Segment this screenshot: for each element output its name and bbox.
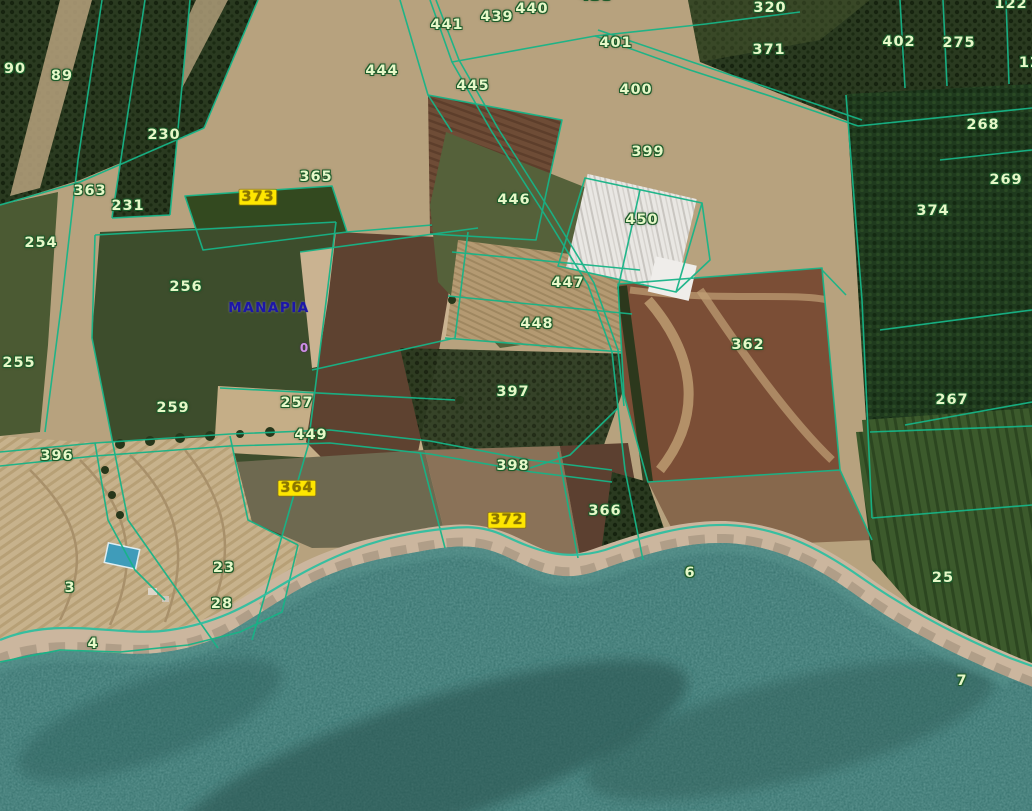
parcel-label-90: 90: [4, 62, 26, 77]
parcel-label-398: 398: [496, 459, 529, 474]
parcel-label-373: 373: [239, 190, 276, 205]
parcel-label-23: 23: [213, 561, 235, 576]
parcel-label-366: 366: [588, 504, 621, 519]
parcel-label-268: 268: [966, 118, 999, 133]
parcel-label-255: 255: [2, 356, 35, 371]
parcel-label-25: 25: [932, 571, 954, 586]
parcel-label-231: 231: [111, 199, 144, 214]
parcel-label-402: 402: [882, 35, 915, 50]
parcel-label-89: 89: [51, 69, 73, 84]
parcel-label-401: 401: [599, 36, 632, 51]
place-name-label: ΜΑΝΑΡΙΑ: [228, 300, 310, 316]
parcel-label-396: 396: [40, 449, 73, 464]
parcel-label-372: 372: [488, 513, 525, 528]
parcel-label-320: 320: [753, 1, 786, 16]
parcel-label-363: 363: [73, 184, 106, 199]
parcel-label-440: 440: [515, 2, 548, 17]
parcel-label-397: 397: [496, 385, 529, 400]
parcel-label-439: 439: [480, 10, 513, 25]
satellite-imagery: [0, 0, 1032, 811]
parcel-label-230: 230: [147, 128, 180, 143]
parcel-label-6: 6: [684, 566, 695, 581]
parcel-label-3: 3: [64, 581, 75, 596]
map-viewport[interactable]: 9089230363231365373254255256259257449396…: [0, 0, 1032, 811]
parcel-label-447: 447: [551, 276, 584, 291]
parcel-label-400: 400: [619, 83, 652, 98]
parcel-label-28: 28: [211, 597, 233, 612]
parcel-label-12: 12: [1019, 56, 1032, 71]
parcel-label-122: 122: [994, 0, 1027, 11]
parcel-label-441: 441: [430, 18, 463, 33]
parcel-label-448: 448: [520, 317, 553, 332]
parcel-label-256: 256: [169, 280, 202, 295]
parcel-label-371: 371: [752, 43, 785, 58]
parcel-label-449: 449: [294, 428, 327, 443]
parcel-label-4: 4: [87, 637, 98, 652]
parcel-label-374: 374: [916, 204, 949, 219]
parcel-label-446: 446: [497, 193, 530, 208]
parcel-label-362: 362: [731, 338, 764, 353]
parcel-label-7: 7: [956, 674, 967, 689]
parcel-label-267: 267: [935, 393, 968, 408]
zero-marker-label: 0: [300, 341, 308, 355]
parcel-label-254: 254: [24, 236, 57, 251]
parcel-label-364: 364: [278, 481, 315, 496]
parcel-label-438: 438: [579, 0, 612, 3]
parcel-label-269: 269: [989, 173, 1022, 188]
parcel-label-259: 259: [156, 401, 189, 416]
parcel-label-450: 450: [625, 213, 658, 228]
parcel-label-445: 445: [456, 79, 489, 94]
parcel-label-365: 365: [299, 170, 332, 185]
parcel-label-275: 275: [942, 36, 975, 51]
parcel-label-257: 257: [280, 396, 313, 411]
parcel-label-399: 399: [631, 145, 664, 160]
parcel-label-444: 444: [365, 64, 398, 79]
